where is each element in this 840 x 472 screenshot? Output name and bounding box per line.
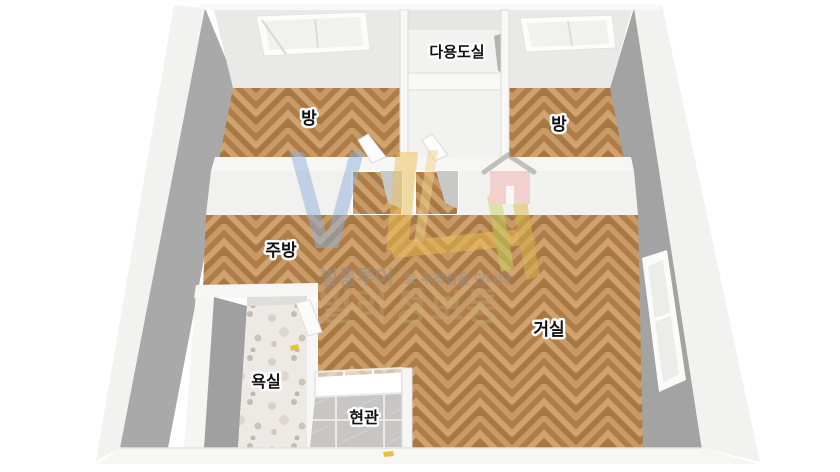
watermark-tagline-rest: 로 우리집을 만나다	[404, 271, 511, 287]
entrance-block	[310, 368, 412, 448]
bedroom-right-window	[520, 15, 616, 52]
label-bathroom: 욕실	[251, 373, 280, 391]
label-utility-room: 다용도실	[429, 44, 484, 61]
entrance-right-wall	[402, 368, 412, 448]
bedroom-left-window	[256, 12, 370, 56]
corridor-wall-right	[501, 10, 509, 160]
label-living-room: 거실	[533, 320, 564, 339]
label-bedroom-right: 방	[551, 115, 567, 134]
bathroom-top-wall	[194, 283, 318, 298]
middle-wall-top	[211, 157, 634, 171]
label-kitchen: 주방	[265, 241, 297, 260]
bottom-wall	[98, 448, 758, 464]
back-wall-utility	[407, 10, 505, 30]
back-wall-top-rim	[199, 4, 662, 10]
utility-front-wall	[403, 73, 508, 90]
bathroom-block	[184, 283, 322, 448]
corridor-wall-left	[400, 10, 408, 160]
floorplan-svg: 빌통투어 로 우리집을 만나다 빌라정보통 방 다용도실 방 주방 거실 욕실 …	[0, 0, 840, 472]
label-entrance: 현관	[349, 408, 379, 427]
label-bedroom-left: 방	[301, 109, 317, 128]
bottom-door-accent	[383, 451, 394, 457]
watermark-tagline-strong: 빌통투어	[320, 266, 394, 289]
watermark-brand: 빌라정보통	[318, 287, 503, 329]
floorplan-image: 빌통투어 로 우리집을 만나다 빌라정보통 방 다용도실 방 주방 거실 욕실 …	[0, 0, 840, 472]
